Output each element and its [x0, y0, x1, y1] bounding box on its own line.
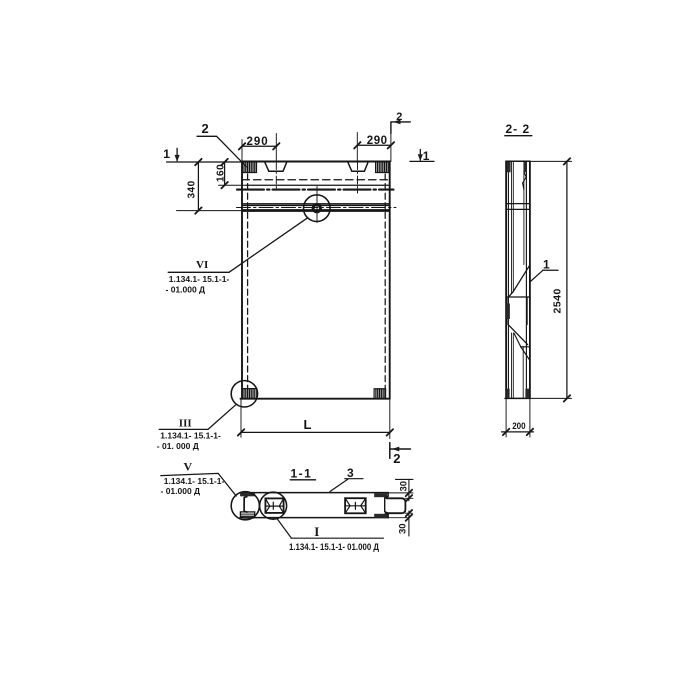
svg-text:1.134.1- 15.1-1-: 1.134.1- 15.1-1- [160, 431, 221, 441]
svg-text:1.134.1- 15.1-1-: 1.134.1- 15.1-1- [169, 274, 230, 284]
svg-text:1: 1 [543, 258, 550, 272]
svg-text:200: 200 [512, 421, 526, 432]
svg-text:L: L [304, 417, 312, 432]
svg-text:2540: 2540 [552, 288, 564, 313]
svg-text:30: 30 [398, 523, 409, 534]
svg-text:2: 2 [202, 121, 209, 136]
svg-text:- 01.000 Д: - 01.000 Д [166, 284, 206, 294]
svg-text:1: 1 [163, 147, 170, 161]
svg-text:2: 2 [396, 111, 402, 123]
svg-text:160: 160 [216, 164, 227, 182]
svg-text:290: 290 [247, 136, 269, 148]
svg-text:V: V [184, 460, 193, 474]
svg-text:- 01.000 Д: - 01.000 Д [161, 486, 201, 496]
svg-text:2: 2 [393, 451, 400, 466]
svg-text:2- 2: 2- 2 [506, 122, 531, 136]
svg-text:1.134.1- 15.1-1- 01.000 Д: 1.134.1- 15.1-1- 01.000 Д [289, 542, 380, 552]
svg-text:1: 1 [423, 149, 430, 163]
svg-text:1.134.1- 15.1-1-: 1.134.1- 15.1-1- [164, 476, 225, 486]
svg-text:I: I [314, 524, 319, 539]
svg-text:- 01. 000 Д: - 01. 000 Д [157, 441, 199, 451]
svg-text:340: 340 [187, 180, 198, 198]
svg-text:1-1: 1-1 [291, 467, 313, 481]
svg-text:III: III [179, 417, 192, 429]
svg-text:3: 3 [347, 466, 354, 480]
svg-text:VI: VI [196, 259, 208, 271]
svg-text:290: 290 [367, 135, 388, 147]
svg-text:30: 30 [399, 481, 410, 492]
